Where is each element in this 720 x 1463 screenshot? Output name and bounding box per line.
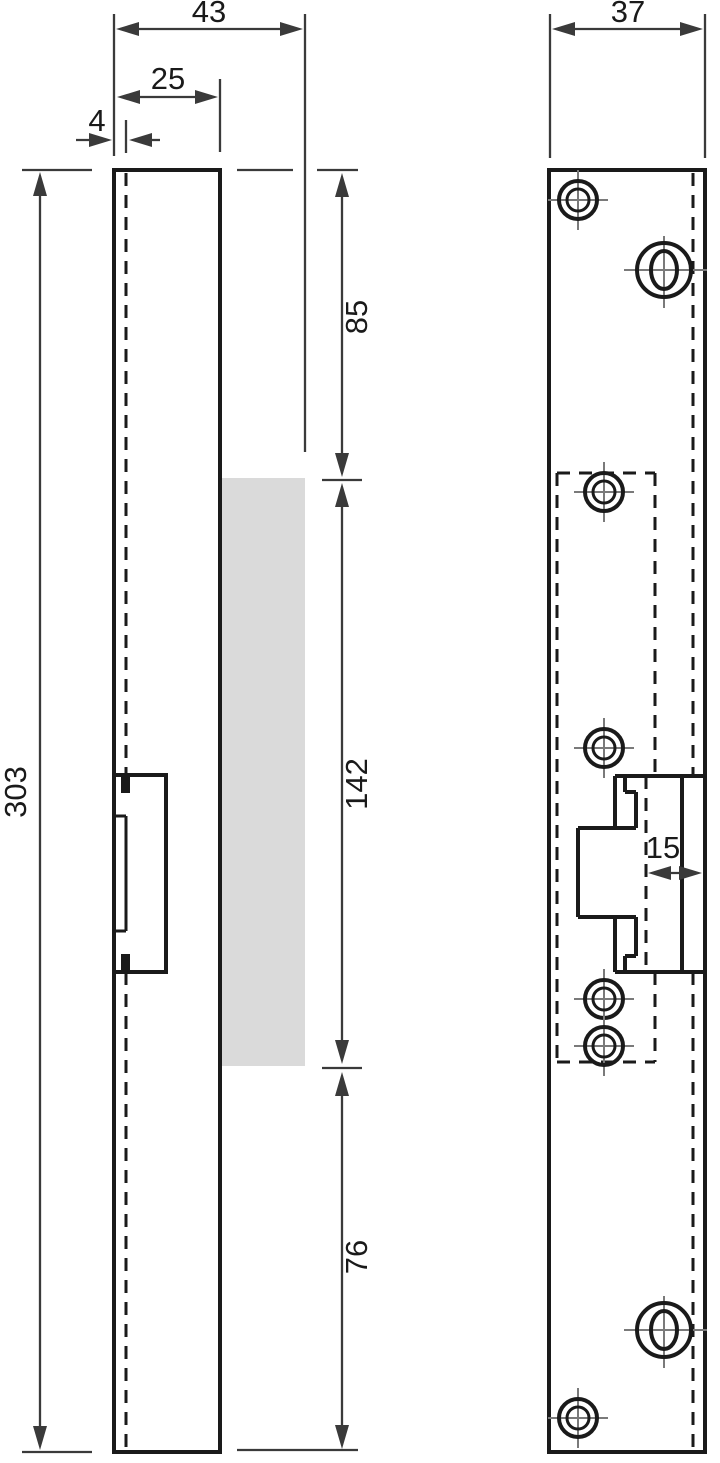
dim-label-bottom-section: 76 [339, 1240, 374, 1274]
dim-label-total-height: 303 [0, 766, 33, 818]
dim-label-faceplate-thickness: 4 [88, 103, 105, 138]
dimension-bottom-section: 76 [237, 1072, 374, 1450]
dimension-body-depth: 25 [117, 61, 220, 152]
side-keeper [114, 775, 166, 972]
dim-label-body-depth: 25 [151, 61, 185, 96]
dimension-faceplate-thickness: 4 [76, 103, 160, 153]
strike-opening-highlight [222, 478, 305, 1066]
dim-label-total-depth: 43 [192, 0, 226, 29]
front-view: 37 15 [548, 0, 707, 1452]
side-view: 43 25 4 303 [0, 0, 374, 1452]
dim-label-strike-section: 142 [339, 758, 374, 810]
dimension-total-height: 303 [0, 170, 92, 1452]
keeper-lip-top [121, 777, 130, 793]
dim-label-faceplate-width: 37 [611, 0, 645, 29]
technical-drawing: 43 25 4 303 [0, 0, 720, 1463]
drawing-sheet: 43 25 4 303 [0, 0, 720, 1463]
dimension-faceplate-width: 37 [550, 0, 705, 158]
dimension-strike-section: 142 [322, 483, 374, 1068]
dim-label-latch-inset: 15 [646, 830, 680, 865]
dim-label-top-section: 85 [339, 300, 374, 334]
keeper-lip-bottom [121, 954, 130, 970]
